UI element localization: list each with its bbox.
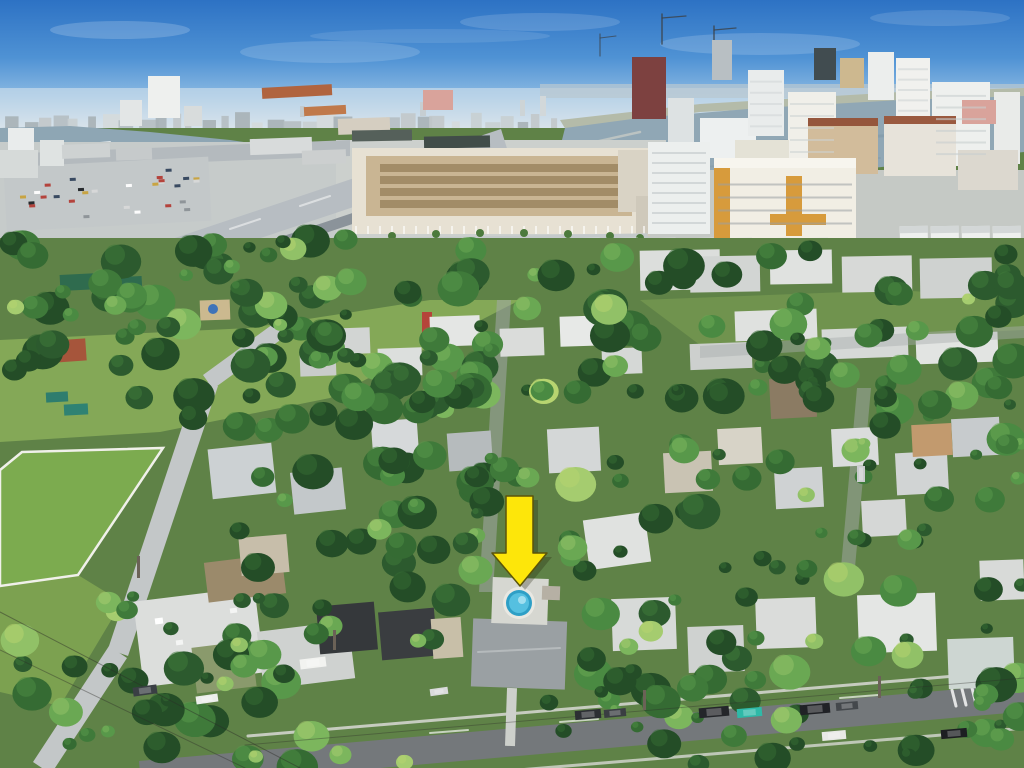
swimming-pool	[503, 587, 535, 619]
playground-equipment	[208, 304, 218, 314]
parking-garage	[714, 158, 856, 240]
convention-center	[352, 148, 650, 236]
hotel-slab	[648, 142, 710, 234]
aerial-photo	[0, 0, 1024, 768]
aerial-photo-canvas	[0, 0, 1024, 768]
